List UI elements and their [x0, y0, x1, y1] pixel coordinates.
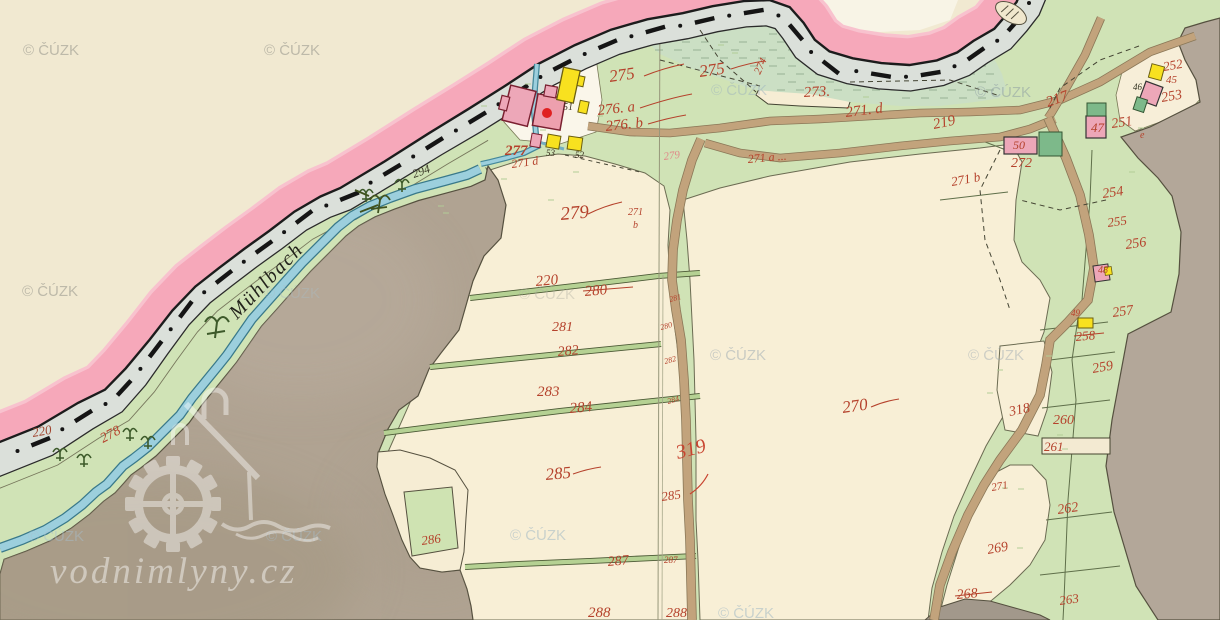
svg-text:287: 287	[664, 555, 678, 565]
svg-text:287: 287	[607, 553, 630, 570]
svg-text:46: 46	[1133, 82, 1143, 92]
svg-text:279: 279	[663, 149, 682, 163]
svg-text:285: 285	[545, 463, 572, 484]
svg-text:b: b	[633, 220, 638, 231]
svg-text:286: 286	[420, 530, 442, 548]
svg-text:© ČÚZK: © ČÚZK	[718, 605, 774, 620]
svg-text:281: 281	[552, 320, 573, 335]
svg-text:283: 283	[537, 384, 560, 400]
svg-text:51: 51	[563, 102, 573, 113]
svg-text:45: 45	[1166, 74, 1178, 86]
svg-text:285: 285	[660, 486, 682, 504]
svg-text:© ČÚZK: © ČÚZK	[710, 347, 766, 364]
svg-text:255: 255	[1106, 212, 1128, 230]
svg-text:52: 52	[575, 150, 585, 160]
svg-text:273.: 273.	[803, 84, 830, 101]
svg-text:vodnimlyny.cz: vodnimlyny.cz	[50, 551, 298, 592]
svg-text:288: 288	[588, 605, 611, 620]
svg-text:251: 251	[1110, 114, 1133, 132]
svg-text:275: 275	[698, 59, 726, 81]
svg-text:47: 47	[1091, 120, 1105, 135]
svg-text:288: 288	[666, 606, 687, 620]
svg-text:© ČÚZK: © ČÚZK	[28, 528, 84, 545]
svg-text:262: 262	[1056, 500, 1079, 518]
svg-text:© ČÚZK: © ČÚZK	[264, 42, 320, 59]
svg-text:50: 50	[1013, 138, 1025, 152]
svg-text:e: e	[1140, 130, 1145, 141]
svg-text:© ČÚZK: © ČÚZK	[968, 347, 1024, 364]
svg-text:263: 263	[1058, 590, 1080, 608]
svg-text:© ČÚZK: © ČÚZK	[975, 84, 1031, 101]
svg-text:275: 275	[608, 64, 636, 86]
svg-text:270: 270	[841, 395, 869, 417]
svg-text:© ČÚZK: © ČÚZK	[711, 82, 767, 99]
svg-text:256: 256	[1124, 235, 1147, 253]
svg-text:53: 53	[546, 148, 556, 158]
svg-text:254: 254	[1101, 184, 1124, 202]
svg-text:257: 257	[1111, 303, 1135, 321]
svg-text:279: 279	[560, 202, 591, 225]
svg-text:© ČÚZK: © ČÚZK	[519, 286, 575, 303]
svg-text:© ČÚZK: © ČÚZK	[23, 42, 79, 59]
svg-text:© ČÚZK: © ČÚZK	[510, 527, 566, 544]
svg-text:271: 271	[628, 207, 643, 218]
svg-text:49: 49	[1071, 308, 1081, 318]
svg-text:© ČÚZK: © ČÚZK	[22, 283, 78, 300]
svg-text:284: 284	[569, 399, 593, 417]
svg-text:272: 272	[1011, 156, 1032, 171]
svg-text:© ČÚZK: © ČÚZK	[264, 285, 320, 302]
svg-text:48: 48	[1098, 265, 1108, 276]
svg-text:282: 282	[557, 343, 579, 360]
svg-text:261: 261	[1044, 439, 1064, 454]
svg-text:260: 260	[1053, 413, 1074, 428]
